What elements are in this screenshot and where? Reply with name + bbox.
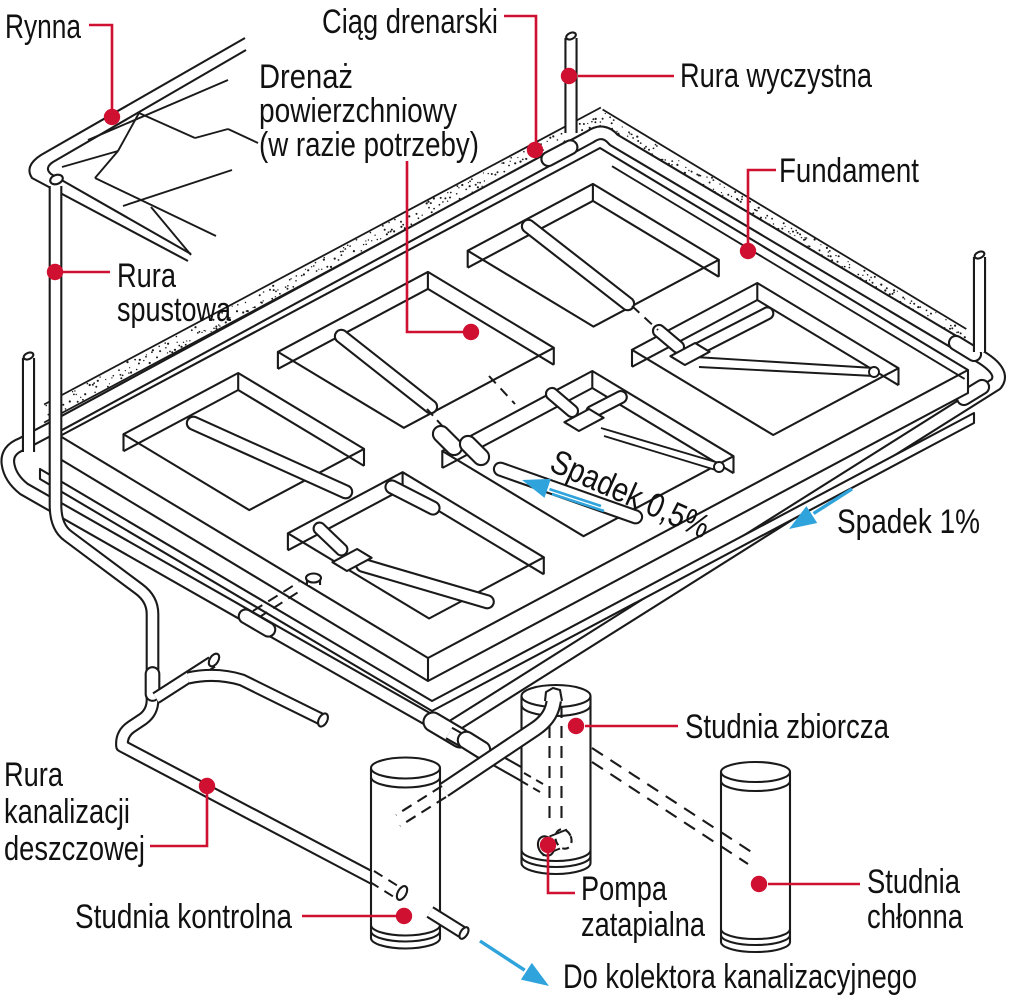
svg-text:deszczowej: deszczowej — [4, 830, 145, 868]
svg-text:kanalizacji: kanalizacji — [4, 793, 130, 831]
svg-text:chłonna: chłonna — [867, 898, 963, 936]
svg-text:powierzchniowy: powierzchniowy — [259, 92, 457, 130]
svg-text:Rura: Rura — [4, 756, 63, 794]
svg-text:Ciąg drenarski: Ciąg drenarski — [322, 3, 498, 41]
svg-text:Rynna: Rynna — [5, 8, 81, 46]
svg-text:Studnia: Studnia — [867, 863, 960, 901]
svg-text:zatapialna: zatapialna — [581, 906, 705, 944]
svg-text:(w razie potrzeby): (w razie potrzeby) — [259, 126, 479, 164]
svg-text:spustowa: spustowa — [117, 291, 231, 329]
svg-text:Spadek 1%: Spadek 1% — [837, 503, 980, 541]
svg-text:Rura wyczystna: Rura wyczystna — [680, 57, 872, 95]
svg-text:Studnia zbiorcza: Studnia zbiorcza — [685, 708, 889, 746]
svg-text:Do kolektora kanalizacyjnego: Do kolektora kanalizacyjnego — [563, 958, 917, 996]
svg-text:Fundament: Fundament — [779, 152, 919, 190]
svg-text:Pompa: Pompa — [581, 870, 667, 908]
svg-text:Rura: Rura — [117, 257, 176, 295]
svg-text:Drenaż: Drenaż — [259, 58, 353, 96]
svg-text:Studnia kontrolna: Studnia kontrolna — [75, 898, 292, 936]
